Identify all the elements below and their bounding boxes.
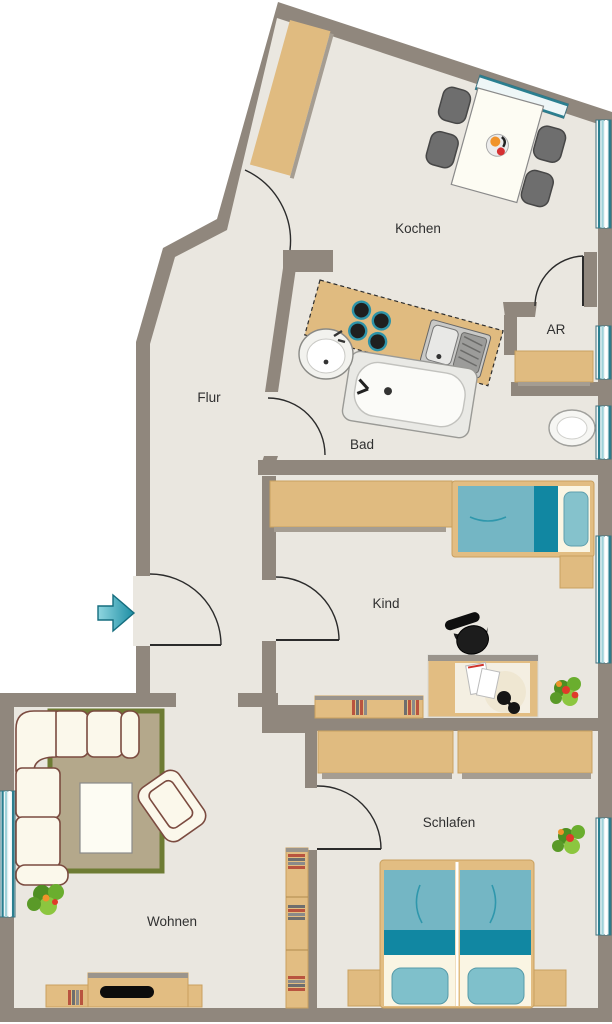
room-label-kind: Kind — [372, 596, 399, 611]
room-label-bad: Bad — [350, 437, 374, 452]
window-wohnen-left — [0, 791, 15, 917]
nightstand-left — [348, 970, 380, 1006]
coffee-table — [80, 783, 132, 853]
window-schlafen — [596, 818, 611, 935]
bed-left — [384, 870, 455, 1006]
window-kochen-right — [596, 120, 611, 228]
floorplan-page: Kochen AR Bad Flur — [0, 0, 612, 1024]
double-bed — [380, 860, 534, 1008]
wohnen-bookshelf — [286, 848, 308, 1008]
kind-wardrobe — [270, 481, 452, 527]
tv — [100, 986, 154, 998]
ar-cabinet — [515, 351, 593, 382]
kind-bookshelf — [315, 696, 423, 718]
nightstand-right — [534, 970, 566, 1006]
room-label-wohnen: Wohnen — [147, 914, 197, 929]
entrance-opening — [133, 576, 152, 646]
schlafen-wardrobe-right — [458, 731, 592, 773]
room-label-flur: Flur — [197, 390, 221, 405]
room-label-kochen: Kochen — [395, 221, 441, 236]
room-label-schlafen: Schlafen — [423, 815, 476, 830]
window-kind — [596, 536, 611, 663]
room-label-ar: AR — [547, 322, 566, 337]
schlafen-wardrobe-left — [318, 731, 453, 773]
floorplan-image: Kochen AR Bad Flur — [0, 0, 612, 1024]
kind-nightstand — [560, 556, 593, 588]
toilet — [549, 410, 595, 446]
wash-basin — [299, 329, 353, 379]
window-ar — [596, 326, 611, 379]
kind-desk — [428, 655, 538, 717]
kind-bed — [452, 481, 594, 557]
entrance-arrow — [98, 595, 134, 631]
window-bad — [596, 406, 611, 459]
bed-right — [460, 870, 531, 1006]
